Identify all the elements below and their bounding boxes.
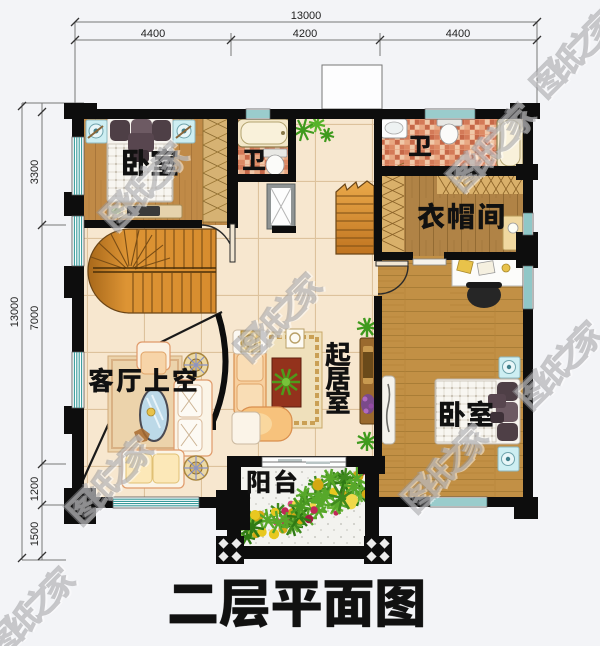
svg-text:4400: 4400 (446, 28, 470, 40)
svg-text:4200: 4200 (293, 28, 317, 40)
svg-text:1200: 1200 (29, 477, 41, 501)
svg-text:13000: 13000 (291, 10, 322, 22)
svg-text:7000: 7000 (29, 306, 41, 330)
svg-text:3300: 3300 (29, 160, 41, 184)
svg-text:1500: 1500 (29, 522, 41, 546)
svg-text:4400: 4400 (141, 28, 165, 40)
svg-text:13000: 13000 (9, 297, 21, 328)
